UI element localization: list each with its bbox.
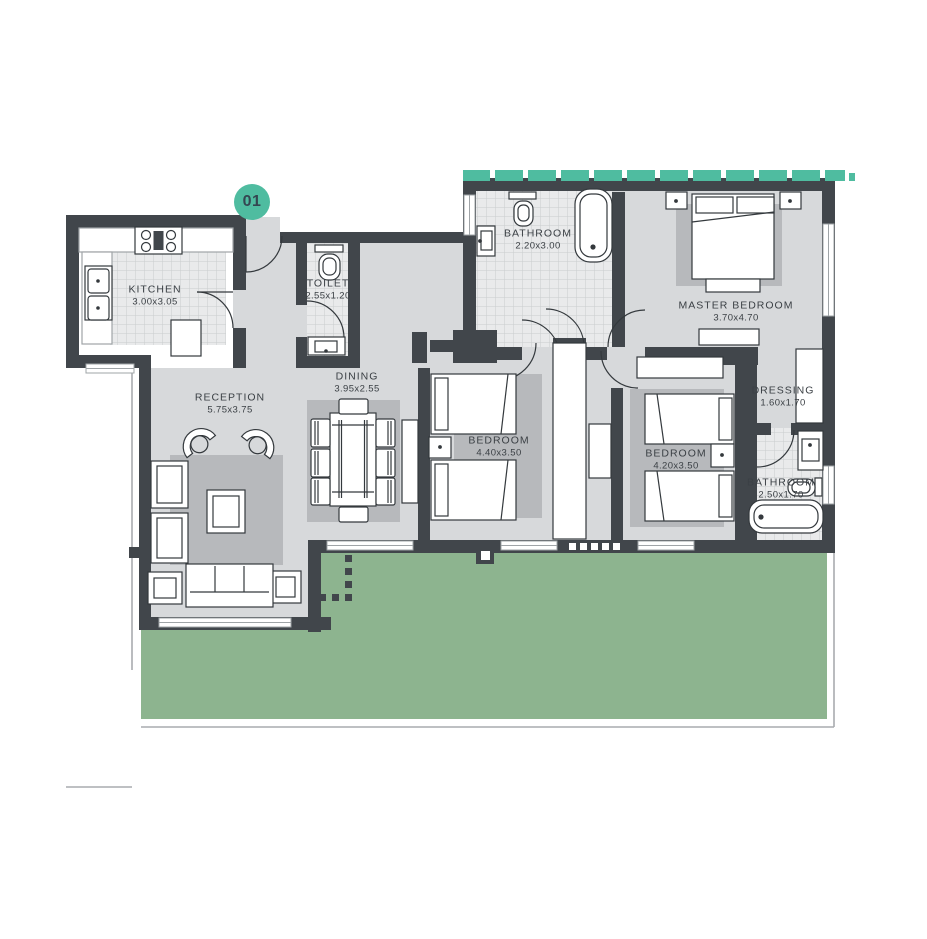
bathroom2-bathtub: [749, 500, 823, 533]
kitchen-stove: [135, 227, 182, 254]
room-name: KITCHEN: [128, 283, 181, 297]
master-bed: [692, 194, 774, 292]
room-label-dining: DINING 3.95x2.55: [334, 370, 379, 397]
bathroom-sink: [477, 226, 495, 256]
room-name: DINING: [334, 370, 379, 384]
room-dims: 4.40x3.50: [468, 448, 529, 461]
bathroom2-vanity: [798, 431, 823, 470]
floor-plan: 01 KITCHEN 3.00x3.05 TOILET 2.55x1.20 BA…: [0, 0, 927, 939]
room-label-dressing: DRESSING 1.60x1.70: [752, 384, 815, 411]
dining-table: [330, 413, 376, 506]
room-label-bathroom: BATHROOM 2.20x3.00: [504, 227, 572, 254]
room-name: BEDROOM: [468, 434, 529, 448]
room-dims: 2.50x1.70: [747, 490, 815, 503]
master-bed-bench: [706, 279, 760, 292]
corridor-wardrobe: [553, 343, 586, 539]
bathroom-bathtub: [575, 189, 612, 262]
room-label-bathroom-2: BATHROOM 2.50x1.70: [747, 476, 815, 503]
room-label-bedroom-2: BEDROOM 4.20x3.50: [645, 447, 706, 474]
room-label-bedroom-1: BEDROOM 4.40x3.50: [468, 434, 529, 461]
room-dims: 3.00x3.05: [128, 297, 181, 310]
room-label-toilet: TOILET 2.55x1.20: [305, 277, 350, 304]
room-name: TOILET: [305, 277, 350, 291]
room-dims: 2.20x3.00: [504, 241, 572, 254]
room-dims: 4.20x3.50: [645, 461, 706, 474]
kitchen-fridge: [171, 320, 201, 356]
corridor-cabinet: [589, 424, 611, 478]
reception-sofa: [186, 564, 273, 607]
room-name: MASTER BEDROOM: [679, 299, 794, 313]
room-name: BATHROOM: [747, 476, 815, 490]
toilet-wc: [315, 245, 343, 280]
room-name: BEDROOM: [645, 447, 706, 461]
room-dims: 1.60x1.70: [752, 398, 815, 411]
room-label-master-bedroom: MASTER BEDROOM 3.70x4.70: [679, 299, 794, 326]
room-name: BATHROOM: [504, 227, 572, 241]
unit-number-badge: 01: [234, 184, 270, 220]
pergola-band: [463, 170, 855, 181]
floor-plan-drawing: [0, 0, 927, 939]
master-dresser: [699, 329, 759, 345]
room-dims: 3.70x4.70: [679, 313, 794, 326]
room-label-kitchen: KITCHEN 3.00x3.05: [128, 283, 181, 310]
kitchen-sink: [85, 266, 112, 320]
room-dims: 2.55x1.20: [305, 291, 350, 304]
room-name: RECEPTION: [195, 391, 265, 405]
room-label-reception: RECEPTION 5.75x3.75: [195, 391, 265, 418]
room-name: DRESSING: [752, 384, 815, 398]
reception-coffee-table: [207, 490, 245, 533]
toilet-sink-cabinet: [308, 337, 345, 355]
room-dims: 5.75x3.75: [195, 405, 265, 418]
room-dims: 3.95x2.55: [334, 384, 379, 397]
dining-sideboard: [402, 420, 418, 503]
bedroom2-closet: [637, 357, 723, 378]
